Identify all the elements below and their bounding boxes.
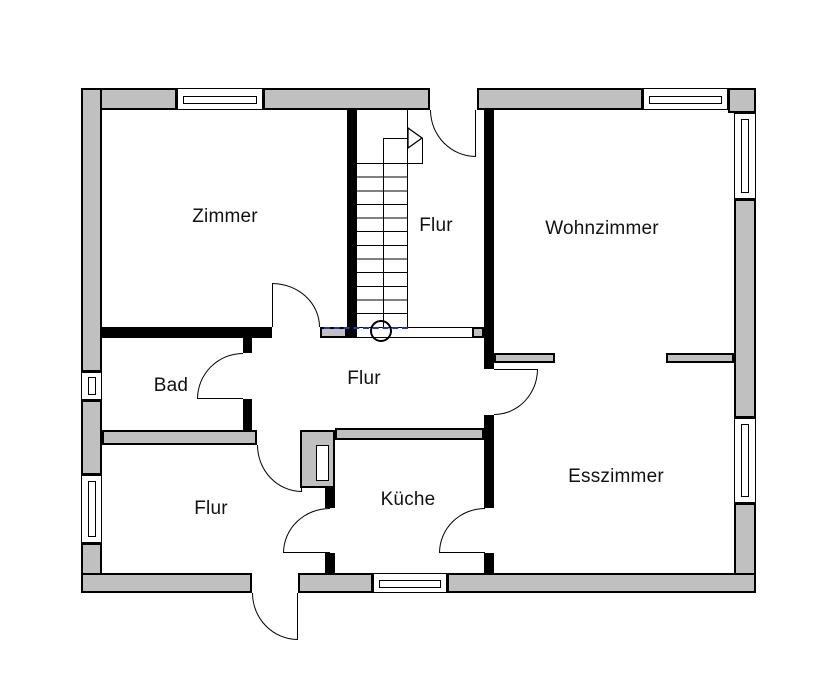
window-pane [379, 580, 441, 588]
room-label-flur-mitte: Flur [347, 368, 381, 390]
section-marker-circle [370, 320, 392, 342]
room-label-kueche: Küche [381, 489, 436, 511]
room-label-wohnzimmer: Wohnzimmer [545, 218, 659, 240]
stair-direction-line [383, 138, 384, 327]
wall-bottom-3 [447, 573, 756, 593]
room-label-bad: Bad [154, 375, 188, 397]
door-opening-top [430, 90, 477, 108]
window-bad-left [81, 372, 102, 400]
door-opening-bottom [252, 575, 298, 591]
room-label-flur-unten: Flur [194, 498, 228, 520]
wall-seg-threshold-right [472, 327, 484, 338]
door-kueche-esszimmer [439, 508, 485, 553]
wall-kueche-esszimmer-2 [484, 553, 494, 573]
door-entrance-top [430, 110, 476, 157]
chimney-block [300, 430, 335, 488]
wall-zimmer-stairhall [347, 110, 357, 338]
door-bad [197, 353, 243, 399]
stair-treads [357, 163, 407, 327]
room-label-zimmer: Zimmer [192, 206, 258, 228]
window-pane [88, 377, 96, 395]
window-pane [741, 119, 749, 193]
room-label-esszimmer: Esszimmer [568, 466, 664, 488]
wall-bad-right-2 [243, 399, 252, 430]
window-pane [88, 481, 96, 537]
wall-bottom-2 [298, 573, 373, 593]
wall-left-2 [81, 400, 102, 475]
floor-plan: Zimmer Flur Wohnzimmer Bad Flur Esszimme… [0, 0, 834, 694]
stair-up-arrow-icon [407, 127, 424, 150]
wall-stub-wohnzimmer-left [494, 353, 555, 363]
stair-arrow-shaft [383, 138, 408, 139]
section-line [324, 327, 408, 329]
wall-kueche-left-1 [325, 488, 335, 508]
window-top-right [643, 88, 728, 110]
chimney-shaft [316, 445, 329, 481]
window-flur-left [81, 475, 102, 543]
wall-kueche-esszimmer-1 [484, 415, 494, 508]
wall-zimmer-bottom [102, 327, 272, 338]
door-zimmer [272, 283, 320, 327]
wall-left-3 [81, 543, 102, 575]
room-label-flur-top: Flur [419, 215, 453, 237]
wall-kueche-left-2 [325, 553, 335, 573]
wall-top-2 [263, 88, 430, 110]
wall-stairhall-wohnzimmer [484, 110, 494, 369]
window-kueche-bottom [373, 573, 447, 593]
window-pane [741, 424, 749, 497]
wall-kueche-top [335, 428, 484, 440]
wall-bad-right-1 [243, 338, 252, 353]
window-top-left [177, 88, 263, 110]
door-flur-flur [257, 445, 302, 492]
window-wohnzimmer-right [734, 113, 756, 199]
window-pane [183, 96, 257, 104]
wall-left-1 [81, 88, 102, 372]
wall-top-3 [477, 88, 643, 110]
wall-bottom-1 [81, 573, 252, 593]
wall-right-1 [734, 199, 756, 418]
wall-stub-wohnzimmer-right [666, 353, 734, 363]
window-esszimmer-right [734, 418, 756, 503]
window-pane [649, 96, 722, 104]
door-flur-kueche [283, 508, 330, 553]
door-flur-esszimmer [494, 369, 538, 415]
door-entrance-bottom [252, 593, 298, 640]
stair-landing-line [357, 163, 422, 164]
wall-corner-top-right [728, 88, 756, 113]
wall-bad-bottom [102, 430, 257, 445]
